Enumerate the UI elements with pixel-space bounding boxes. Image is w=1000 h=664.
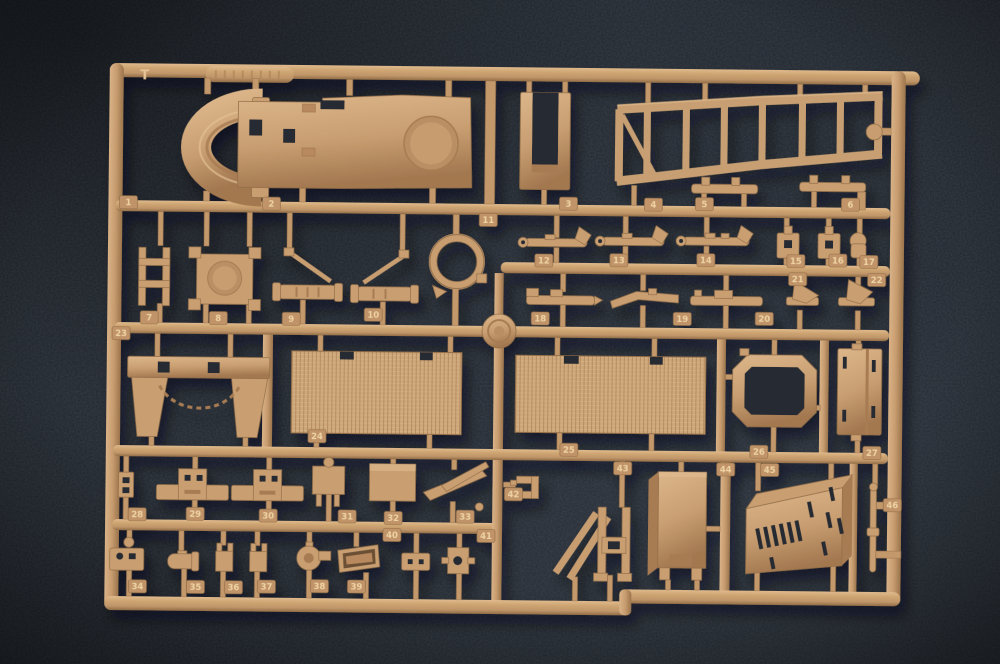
part-tag-31: 31	[338, 510, 356, 523]
svg-text:43: 43	[617, 464, 629, 474]
part-tag-26: 26	[750, 445, 768, 458]
part-tag-17: 17	[860, 255, 878, 268]
part-8-hatch-plate	[188, 247, 261, 311]
svg-text:5: 5	[701, 200, 707, 210]
svg-text:42: 42	[507, 490, 519, 500]
frame-bottom-right-rail	[619, 589, 900, 606]
part-tag-30: 30	[259, 509, 277, 522]
part-32-box	[369, 464, 415, 501]
svg-text:15: 15	[790, 257, 802, 267]
part-tag-6: 6	[841, 198, 859, 211]
mold-code-plate	[206, 66, 294, 83]
part-tag-22: 22	[868, 273, 886, 286]
svg-text:39: 39	[350, 583, 362, 593]
part-tag-13: 13	[610, 254, 628, 267]
part-tag-35: 35	[186, 580, 204, 593]
part-tag-18: 18	[531, 312, 549, 325]
svg-text:2: 2	[268, 200, 274, 210]
part-25-mesh-panel	[515, 355, 706, 434]
part-26-hatch-frame	[732, 349, 817, 428]
svg-text:10: 10	[367, 311, 379, 321]
svg-text:14: 14	[700, 256, 712, 266]
svg-text:30: 30	[262, 512, 274, 522]
svg-text:36: 36	[227, 583, 239, 593]
part-tag-37: 37	[257, 580, 275, 593]
part-28-small-bracket	[118, 472, 133, 497]
svg-text:1: 1	[125, 198, 131, 208]
svg-text:40: 40	[386, 531, 398, 541]
part-tag-42: 42	[504, 488, 522, 501]
part-tag-46: 46	[883, 499, 901, 512]
part-tag-20: 20	[755, 312, 773, 325]
part-tag-15: 15	[787, 255, 805, 268]
part-40-plate	[402, 553, 430, 570]
runner-center-mid	[493, 337, 504, 449]
svg-text:17: 17	[863, 258, 875, 268]
part-tag-39: 39	[347, 580, 365, 593]
photo-canvas: T 1 2 3 4 5 6 7 8 9 10 11 12 13 14 15 16…	[0, 0, 1000, 664]
svg-text:41: 41	[480, 532, 492, 542]
part-tag-23: 23	[112, 327, 130, 340]
part-24-mesh-panel	[291, 351, 462, 435]
part-tag-1: 1	[119, 196, 137, 209]
svg-text:26: 26	[753, 448, 765, 458]
part-tag-36: 36	[224, 581, 242, 594]
part-tag-3: 3	[559, 197, 577, 210]
part-tag-25: 25	[560, 443, 578, 456]
svg-text:34: 34	[131, 582, 143, 592]
part-tag-33: 33	[456, 510, 474, 523]
part-2-floor-plate	[238, 93, 473, 189]
svg-text:8: 8	[215, 314, 221, 324]
part-27-slotted-panel	[837, 344, 882, 441]
part-tag-7: 7	[140, 311, 158, 324]
svg-text:28: 28	[131, 510, 143, 520]
svg-text:31: 31	[341, 512, 353, 522]
part-tag-2: 2	[262, 197, 280, 210]
svg-text:32: 32	[387, 514, 399, 524]
part-44-tall-box	[648, 472, 707, 581]
svg-text:45: 45	[764, 466, 776, 476]
part-tag-44: 44	[717, 463, 735, 476]
svg-text:20: 20	[758, 315, 770, 325]
part-tag-21: 21	[789, 273, 807, 286]
svg-text:3: 3	[565, 200, 571, 210]
svg-text:18: 18	[534, 314, 546, 324]
svg-text:16: 16	[832, 257, 844, 267]
part-tag-9: 9	[282, 312, 300, 325]
svg-text:29: 29	[189, 510, 201, 520]
part-tag-11: 11	[479, 213, 497, 226]
part-tag-43: 43	[614, 462, 632, 475]
sprue-letter: T	[140, 68, 149, 83]
svg-text:33: 33	[459, 513, 471, 523]
part-tag-4: 4	[644, 198, 662, 211]
svg-text:6: 6	[847, 201, 853, 211]
svg-text:44: 44	[720, 465, 732, 475]
part-tag-5: 5	[695, 198, 713, 211]
frame-bottom-jog	[619, 589, 631, 615]
part-17-cap-cylinder	[850, 233, 866, 258]
part-tag-24: 24	[308, 430, 326, 443]
part-tag-40: 40	[383, 528, 401, 541]
svg-text:21: 21	[792, 275, 804, 285]
runner-row3-right	[819, 340, 829, 452]
svg-text:19: 19	[676, 315, 688, 325]
part-tag-8: 8	[209, 312, 227, 325]
svg-text:23: 23	[115, 329, 127, 339]
runner-row3-mid	[716, 339, 726, 451]
svg-text:38: 38	[313, 582, 325, 592]
part-3-u-channel	[520, 92, 571, 190]
part-tag-14: 14	[697, 254, 715, 267]
svg-text:12: 12	[538, 256, 550, 266]
svg-text:46: 46	[886, 501, 898, 511]
part-tag-45: 45	[761, 463, 779, 476]
svg-text:13: 13	[613, 256, 625, 266]
svg-text:27: 27	[866, 449, 878, 459]
part-tag-38: 38	[310, 580, 328, 593]
svg-text:37: 37	[260, 583, 272, 593]
part-tag-27: 27	[863, 446, 881, 459]
sprue-photo: T 1 2 3 4 5 6 7 8 9 10 11 12 13 14 15 16…	[0, 0, 1000, 664]
svg-text:25: 25	[563, 446, 575, 456]
part-tag-29: 29	[186, 507, 204, 520]
runner-row4-mid	[719, 462, 730, 590]
part-tag-28: 28	[128, 508, 146, 521]
svg-text:4: 4	[650, 201, 656, 211]
part-tag-19: 19	[673, 312, 691, 325]
svg-text:24: 24	[311, 432, 323, 442]
svg-text:9: 9	[288, 315, 294, 325]
part-tag-10: 10	[364, 308, 382, 321]
svg-text:35: 35	[189, 583, 201, 593]
svg-text:22: 22	[871, 276, 883, 286]
svg-text:11: 11	[482, 216, 494, 226]
part-tag-41: 41	[477, 529, 495, 542]
svg-text:7: 7	[146, 313, 152, 323]
part-tag-12: 12	[535, 254, 553, 267]
part-tag-16: 16	[829, 254, 847, 267]
part-tag-34: 34	[128, 580, 146, 593]
part-tag-32: 32	[384, 511, 402, 524]
